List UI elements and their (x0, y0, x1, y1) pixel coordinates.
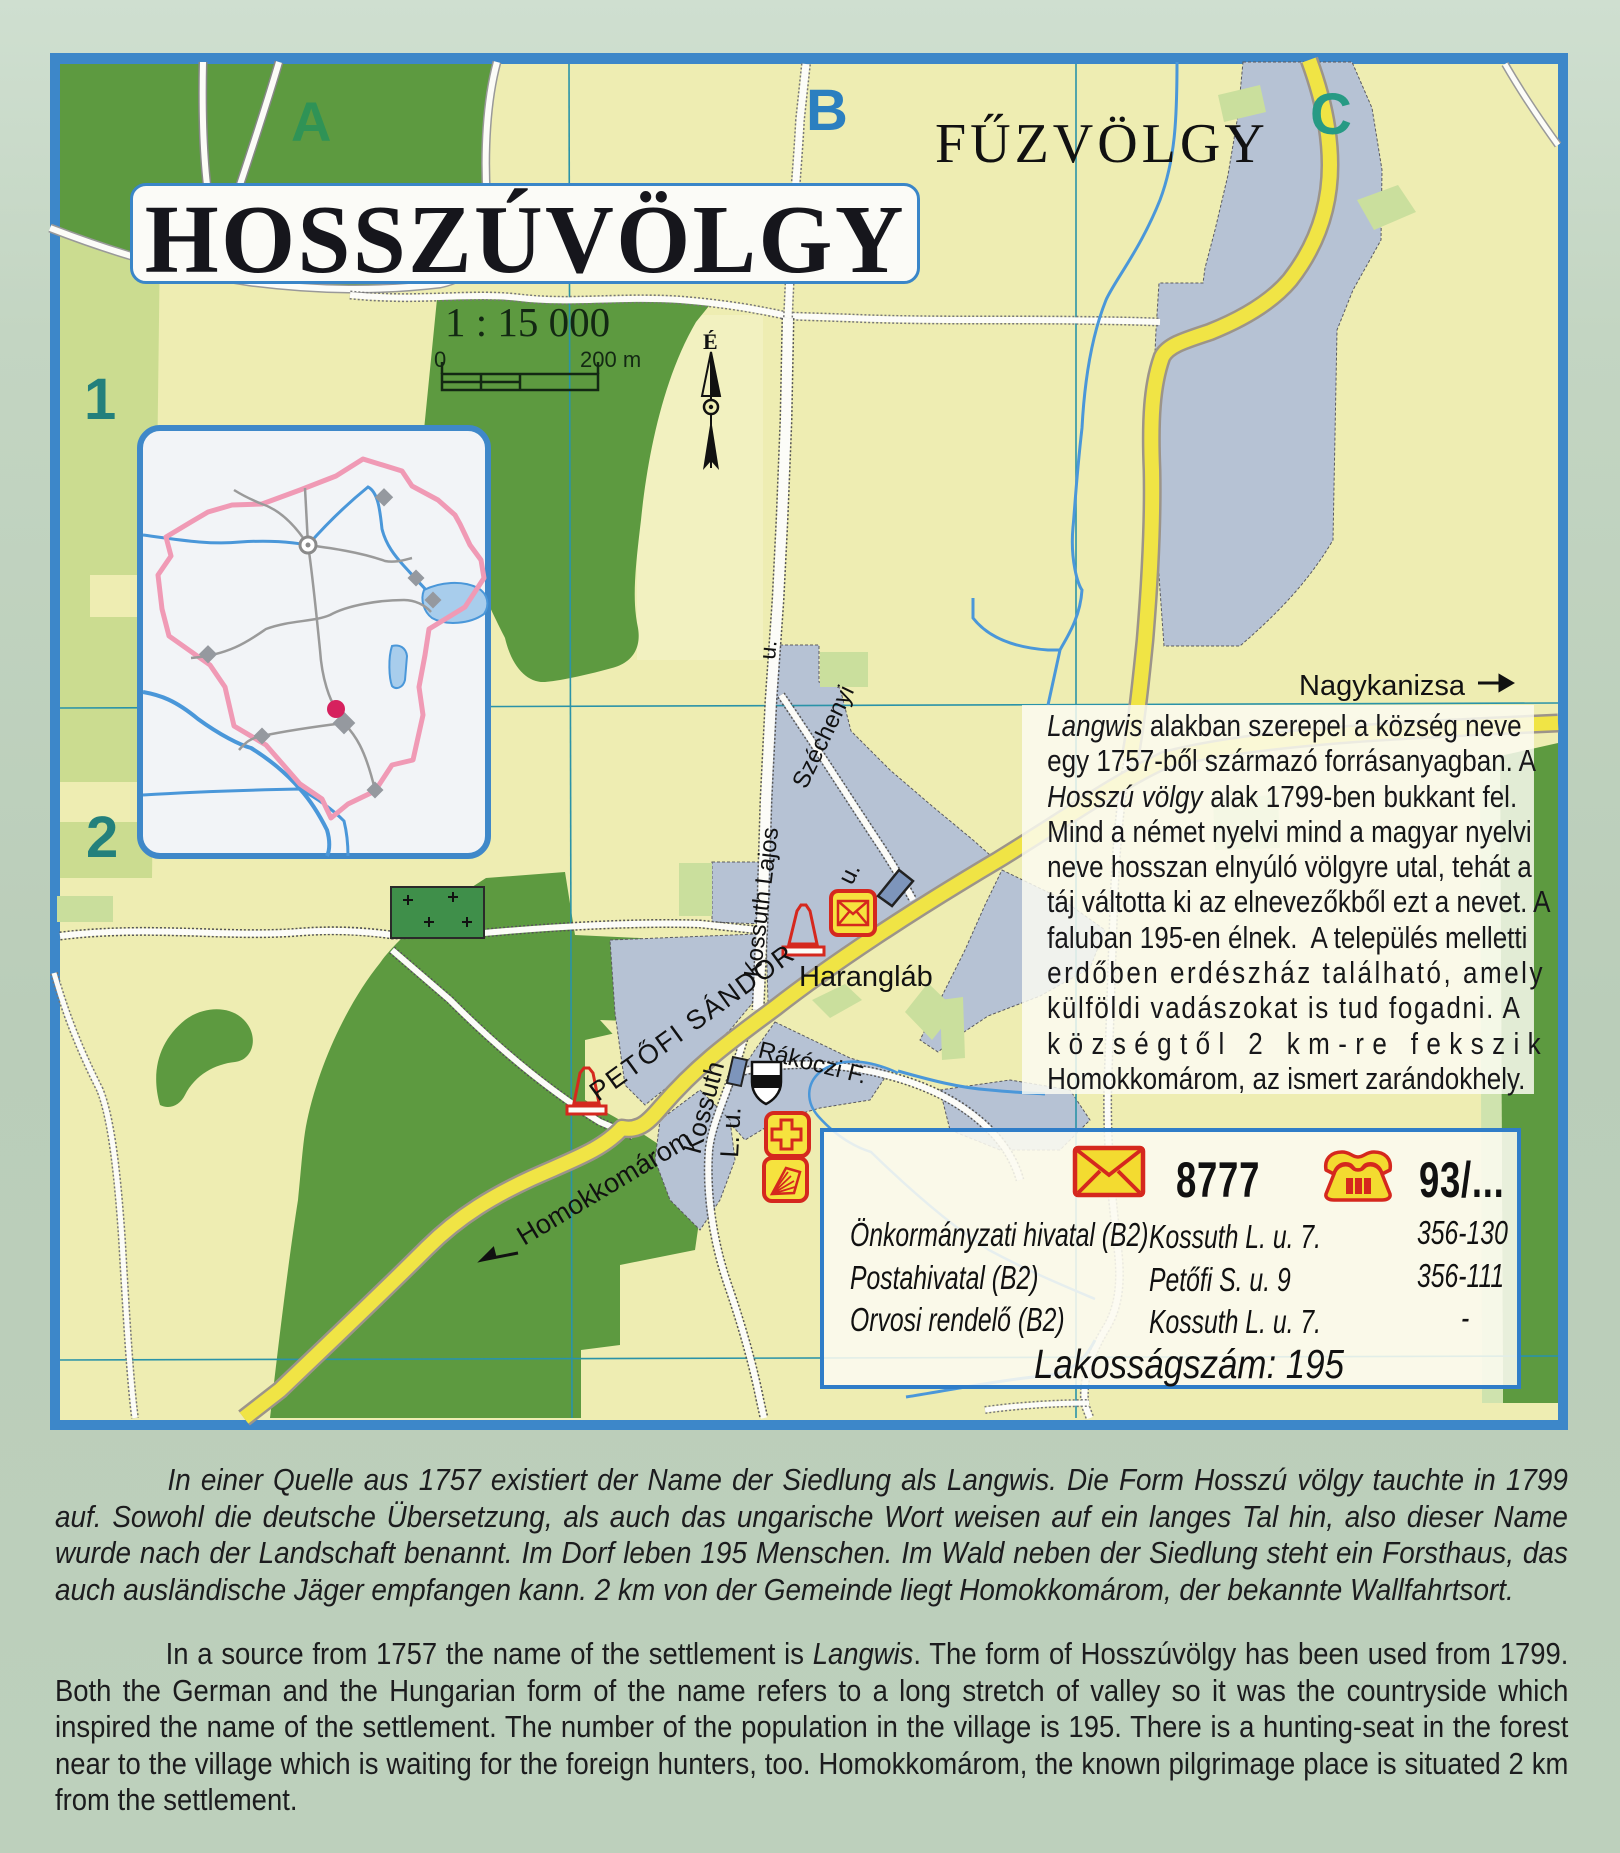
svg-text:u.: u. (754, 639, 782, 660)
svg-text:1 : 15 000: 1 : 15 000 (445, 299, 610, 345)
svg-text:Nagykanizsa: Nagykanizsa (1299, 670, 1466, 702)
svg-text:A: A (291, 90, 331, 153)
svg-text:C: C (1310, 82, 1352, 147)
svg-text:200 m: 200 m (580, 347, 641, 372)
svg-text:FŰZVÖLGY: FŰZVÖLGY (935, 112, 1269, 175)
svg-text:0: 0 (434, 347, 446, 372)
svg-text:B: B (806, 78, 848, 143)
svg-text:L. u.: L. u. (714, 1106, 747, 1158)
svg-text:É: É (703, 329, 718, 354)
svg-text:Harangláb: Harangláb (799, 961, 933, 993)
svg-text:1: 1 (84, 367, 116, 432)
svg-text:2: 2 (86, 805, 118, 870)
